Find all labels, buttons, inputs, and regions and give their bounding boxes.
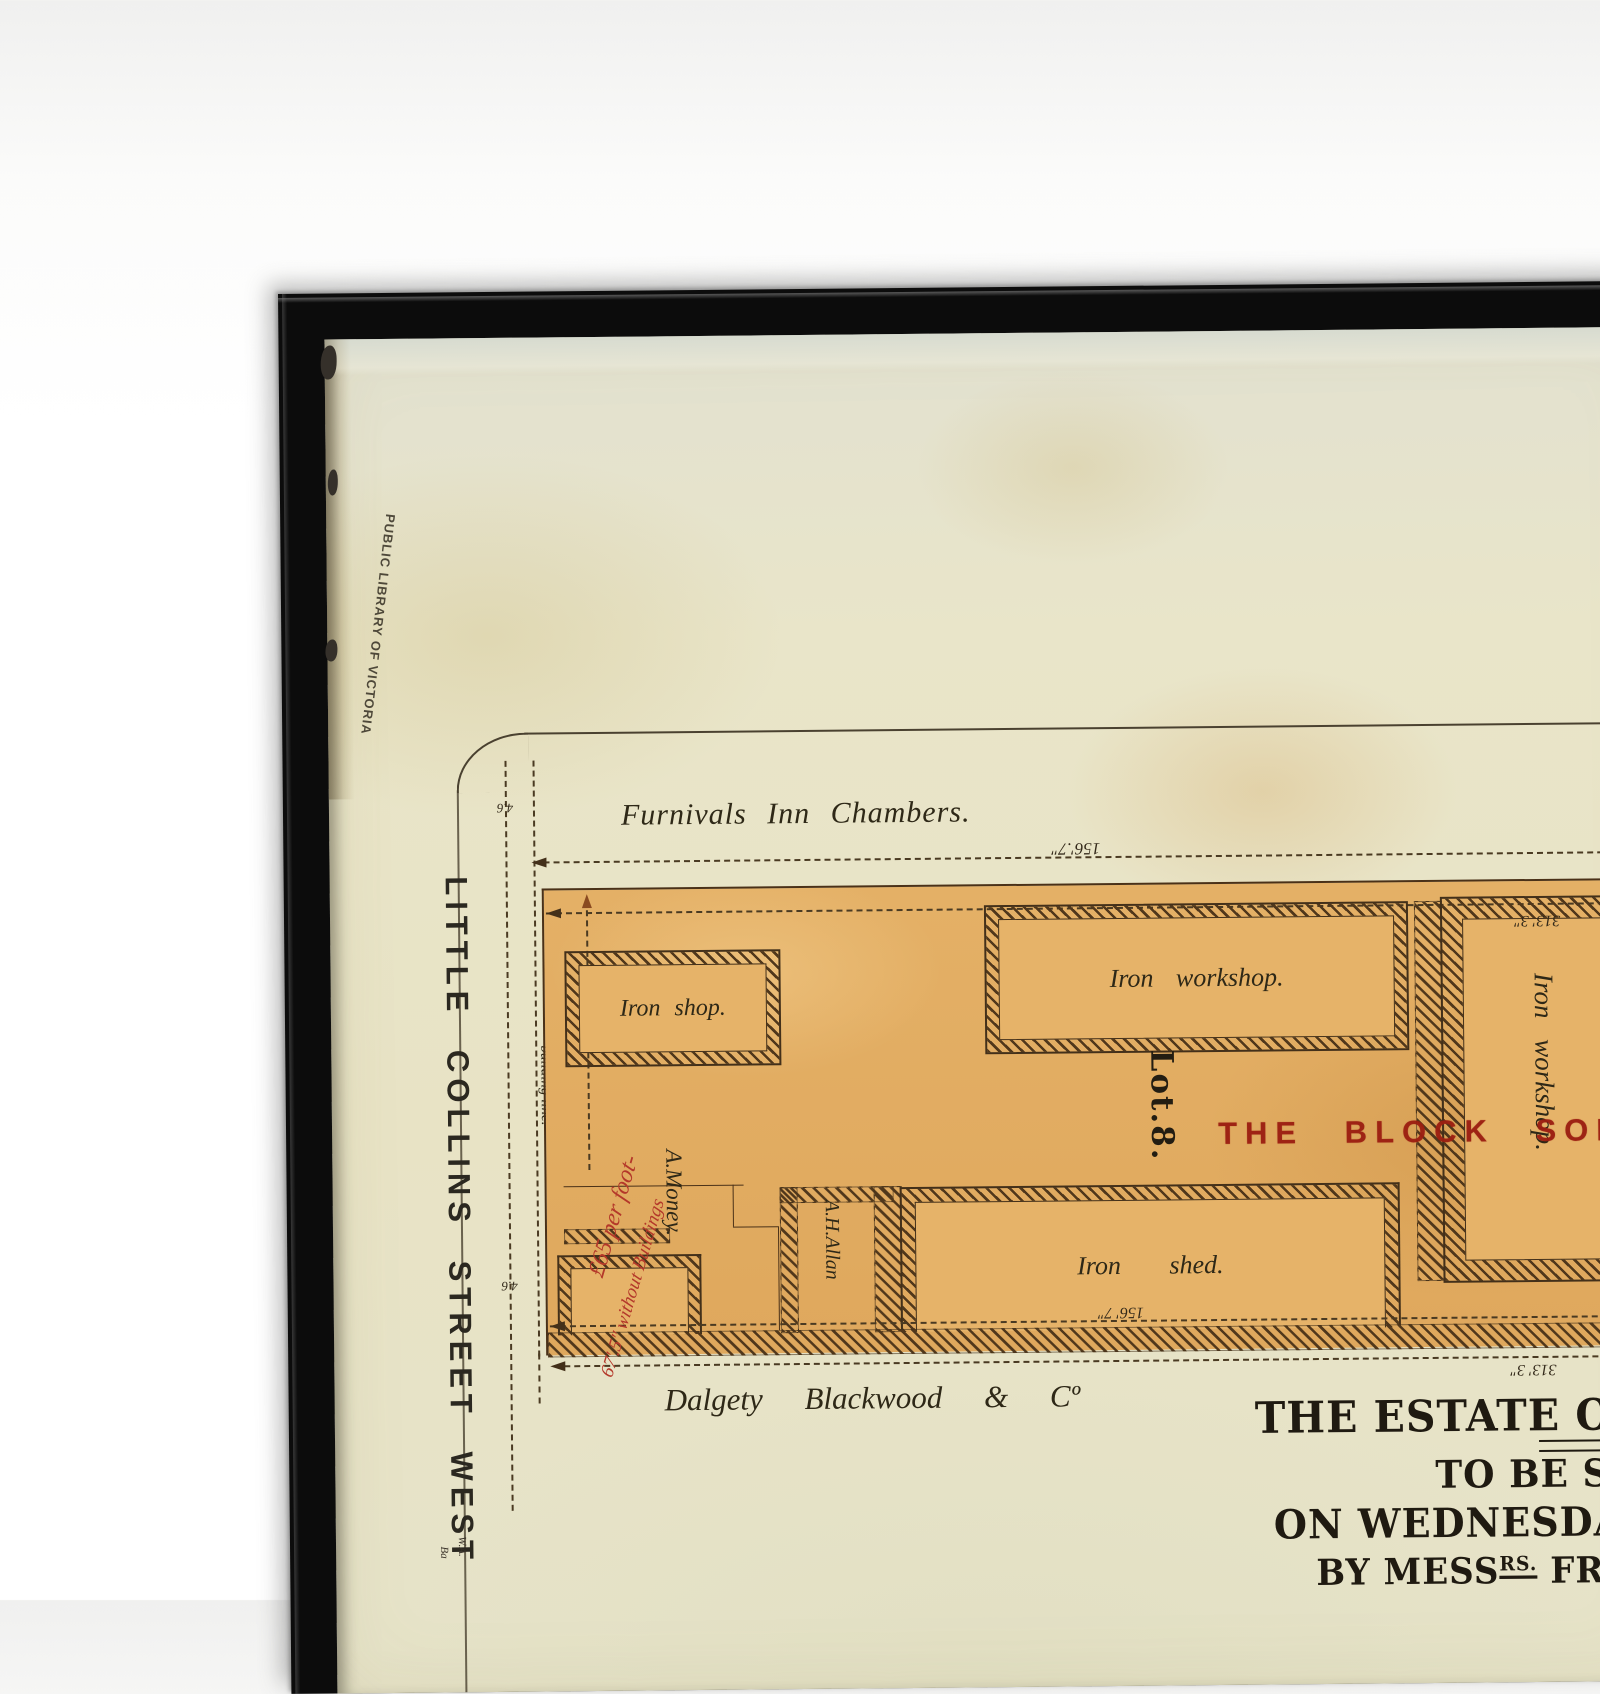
allan-wall-left — [780, 1187, 799, 1333]
title-line2: TO BE SOL — [1435, 1451, 1600, 1498]
plot-boundary — [733, 1226, 778, 1227]
title-line3-text: ON WEDNESDAY 22 — [1274, 1496, 1600, 1548]
building-iron-shed: Iron shed. — [900, 1182, 1401, 1332]
picture-frame: PUBLIC LIBRARY OF VICTORIA 4.6 4.6 LITTL… — [278, 281, 1600, 1694]
title-line4-mid: FRASER & C — [1537, 1547, 1600, 1592]
building-label: Iron shed. — [1077, 1249, 1224, 1280]
block-south-wall — [548, 1322, 1600, 1358]
title-underline — [1539, 1439, 1600, 1452]
sold-stamp: THE BLOCK SOLD FOR — [1218, 1111, 1600, 1152]
title-line4-text: BY MESS — [1316, 1550, 1500, 1594]
lot8-block: Iron shop. Iron workshop. Iron workshop.… — [542, 878, 1600, 1356]
building-line-dashed — [538, 1354, 540, 1404]
building-label: Iron shop. — [620, 994, 726, 1022]
top-dimension-label: 156'.7″ — [1051, 838, 1100, 858]
title-line1: THE ESTATE OF THE — [1255, 1388, 1600, 1444]
street-boundary-dashed — [504, 761, 513, 1511]
dimension-arrow — [531, 857, 546, 867]
title-line3: ON WEDNESDAY 22ND- — [1274, 1496, 1600, 1549]
building-label: Iron workshop. — [1109, 962, 1283, 994]
library-stamp: PUBLIC LIBRARY OF VICTORIA — [358, 513, 398, 735]
credit-line2: Ba — [438, 1546, 450, 1558]
credit-line1: W.A. — [456, 1536, 468, 1556]
south-boundary-dashed — [554, 1355, 1600, 1368]
neighbor-label-dalgety: Dalgety Blackwood & Cº — [664, 1378, 1080, 1418]
offset-dimension-top: 4.6 — [497, 800, 513, 816]
title-line4-superscript-rs: RS. — [1499, 1552, 1537, 1579]
right-depth-dimension-top: 313' 3″ — [1514, 911, 1560, 929]
offset-dimension-bottom: 4.6 — [501, 1278, 517, 1294]
paper-top-edge — [324, 327, 1600, 376]
torn-paper-edge — [324, 339, 354, 799]
street-label-little-collins: LITTLE COLLINS STREET WEST — [438, 876, 481, 1565]
title-line4: BY MESSRS. FRASER & CO., A — [1316, 1547, 1600, 1595]
allan-wall-right — [874, 1186, 903, 1332]
neighbor-label-furnivals: Furnivals Inn Chambers. — [621, 795, 971, 832]
map-paper: PUBLIC LIBRARY OF VICTORIA 4.6 4.6 LITTL… — [324, 327, 1600, 1694]
occupant-allan: A.H.Allan — [820, 1200, 844, 1280]
dimension-arrow — [550, 1361, 565, 1371]
plate-border-corner — [456, 733, 529, 794]
plot-boundary — [733, 1185, 734, 1227]
bottom-dimension-label: 156' 7″ — [1098, 1303, 1144, 1321]
frame-bevel — [282, 294, 300, 1694]
dimension-arrow — [550, 1321, 565, 1331]
dimension-arrow — [546, 908, 561, 918]
frame-bevel — [278, 285, 1600, 303]
plate-border-top — [524, 722, 1600, 735]
building-iron-workshop-right — [1440, 894, 1600, 1283]
building-iron-workshop: Iron workshop. — [984, 901, 1409, 1054]
right-depth-dimension-bottom: 313' 3″ — [1510, 1360, 1556, 1378]
dimension-arrow — [582, 894, 592, 908]
lot-number: Lot.8. — [1143, 1049, 1180, 1161]
